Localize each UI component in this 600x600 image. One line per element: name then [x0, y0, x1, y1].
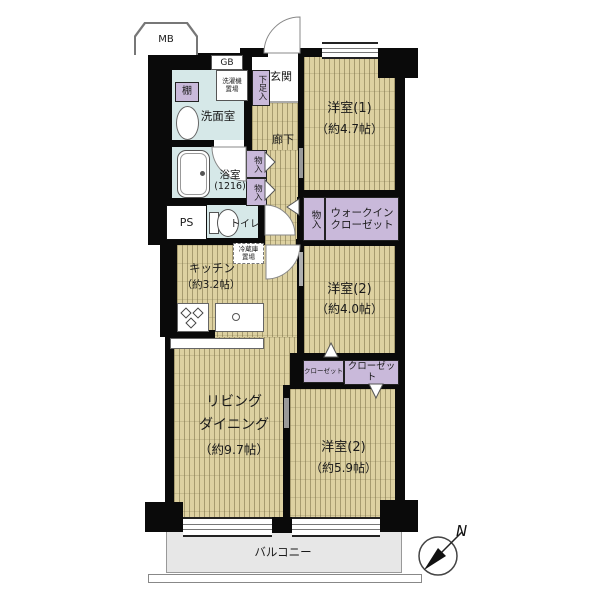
wic-label-1: ウォークイン [331, 207, 394, 219]
meter-box-inner: MB [136, 24, 196, 55]
wall-segment [290, 353, 405, 360]
western1-name: 洋室(1) [304, 97, 395, 116]
toilet-name: トイレ [229, 215, 261, 230]
corridor-name: 廊下 [265, 131, 301, 147]
stove [177, 303, 209, 332]
western2-btm-name: 洋室(2) [292, 436, 395, 455]
closet-label: クローゼット [345, 362, 398, 384]
laundry-space: 洗濯機 置場 [216, 70, 248, 101]
wall-corner-top-right [378, 48, 418, 78]
compass: N [412, 518, 476, 582]
entrance-door-arc [264, 17, 300, 53]
burner-icon [192, 307, 203, 318]
bath-size: (1216) [206, 181, 254, 192]
kitchen-name: キッチン [170, 260, 254, 276]
wall-segment [172, 140, 214, 147]
washroom-name: 洗面室 [190, 108, 246, 124]
wall-segment [244, 53, 252, 150]
shelf: 棚 [175, 82, 199, 102]
western2-mid-size: （約4.0帖） [300, 300, 399, 317]
floor-plan: MB GB PS 洗濯機 置場 冷蔵庫 置場 下足入 棚 物入 物入 物入 ウォ… [0, 0, 600, 600]
closet-label: クローゼット [304, 368, 343, 375]
window-living-balcony [183, 517, 272, 537]
drain-icon [232, 313, 240, 321]
wall-corner-bottom-left [145, 502, 183, 532]
living-name-2: ダイニング [174, 414, 294, 434]
western2-btm-size: （約5.9帖） [290, 459, 397, 476]
gas-box: GB [211, 55, 243, 70]
closet-large: クローゼット [344, 360, 399, 385]
faucet-icon [200, 171, 205, 176]
entrance-name: 玄関 [263, 68, 299, 84]
laundry-label-2: 置場 [226, 86, 239, 94]
closet-small: クローゼット [303, 360, 344, 383]
wall-segment [290, 360, 303, 382]
western2-mid-floor [304, 245, 395, 353]
balcony-rail [148, 574, 422, 583]
shelf-label: 棚 [182, 86, 192, 98]
meter-box-label: MB [158, 34, 174, 45]
bath-name: 浴室 [208, 167, 252, 182]
wall-segment [165, 337, 174, 520]
balcony-name: バルコニー [166, 544, 400, 560]
burner-icon [185, 317, 196, 328]
corridor-floor-lower [265, 150, 298, 245]
meter-box: MB [134, 22, 198, 55]
window-bedroom-balcony [292, 517, 380, 537]
living-size: （約9.7帖） [174, 439, 294, 458]
wic-label-2: クローゼット [331, 219, 394, 231]
storage-label: 物入 [309, 210, 320, 229]
kitchen-size: （約3.2帖） [166, 277, 256, 292]
living-name-1: リビング [174, 391, 294, 411]
gas-box-label: GB [220, 58, 233, 68]
western2-mid-name: 洋室(2) [304, 278, 395, 297]
window-west1-top [322, 42, 378, 59]
compass-north-label: N [456, 522, 467, 540]
storage-wic-side: 物入 [303, 197, 325, 241]
walk-in-closet: ウォークイン クローゼット [325, 197, 399, 241]
storage-label: 物入 [252, 156, 262, 173]
wall-segment [298, 190, 405, 197]
kitchen-counter-edge [170, 338, 264, 349]
kitchen-sink [215, 303, 264, 332]
western1-size: （約4.7帖） [300, 120, 399, 137]
pipe-space-label: PS [180, 216, 194, 229]
pipe-space: PS [166, 205, 207, 240]
